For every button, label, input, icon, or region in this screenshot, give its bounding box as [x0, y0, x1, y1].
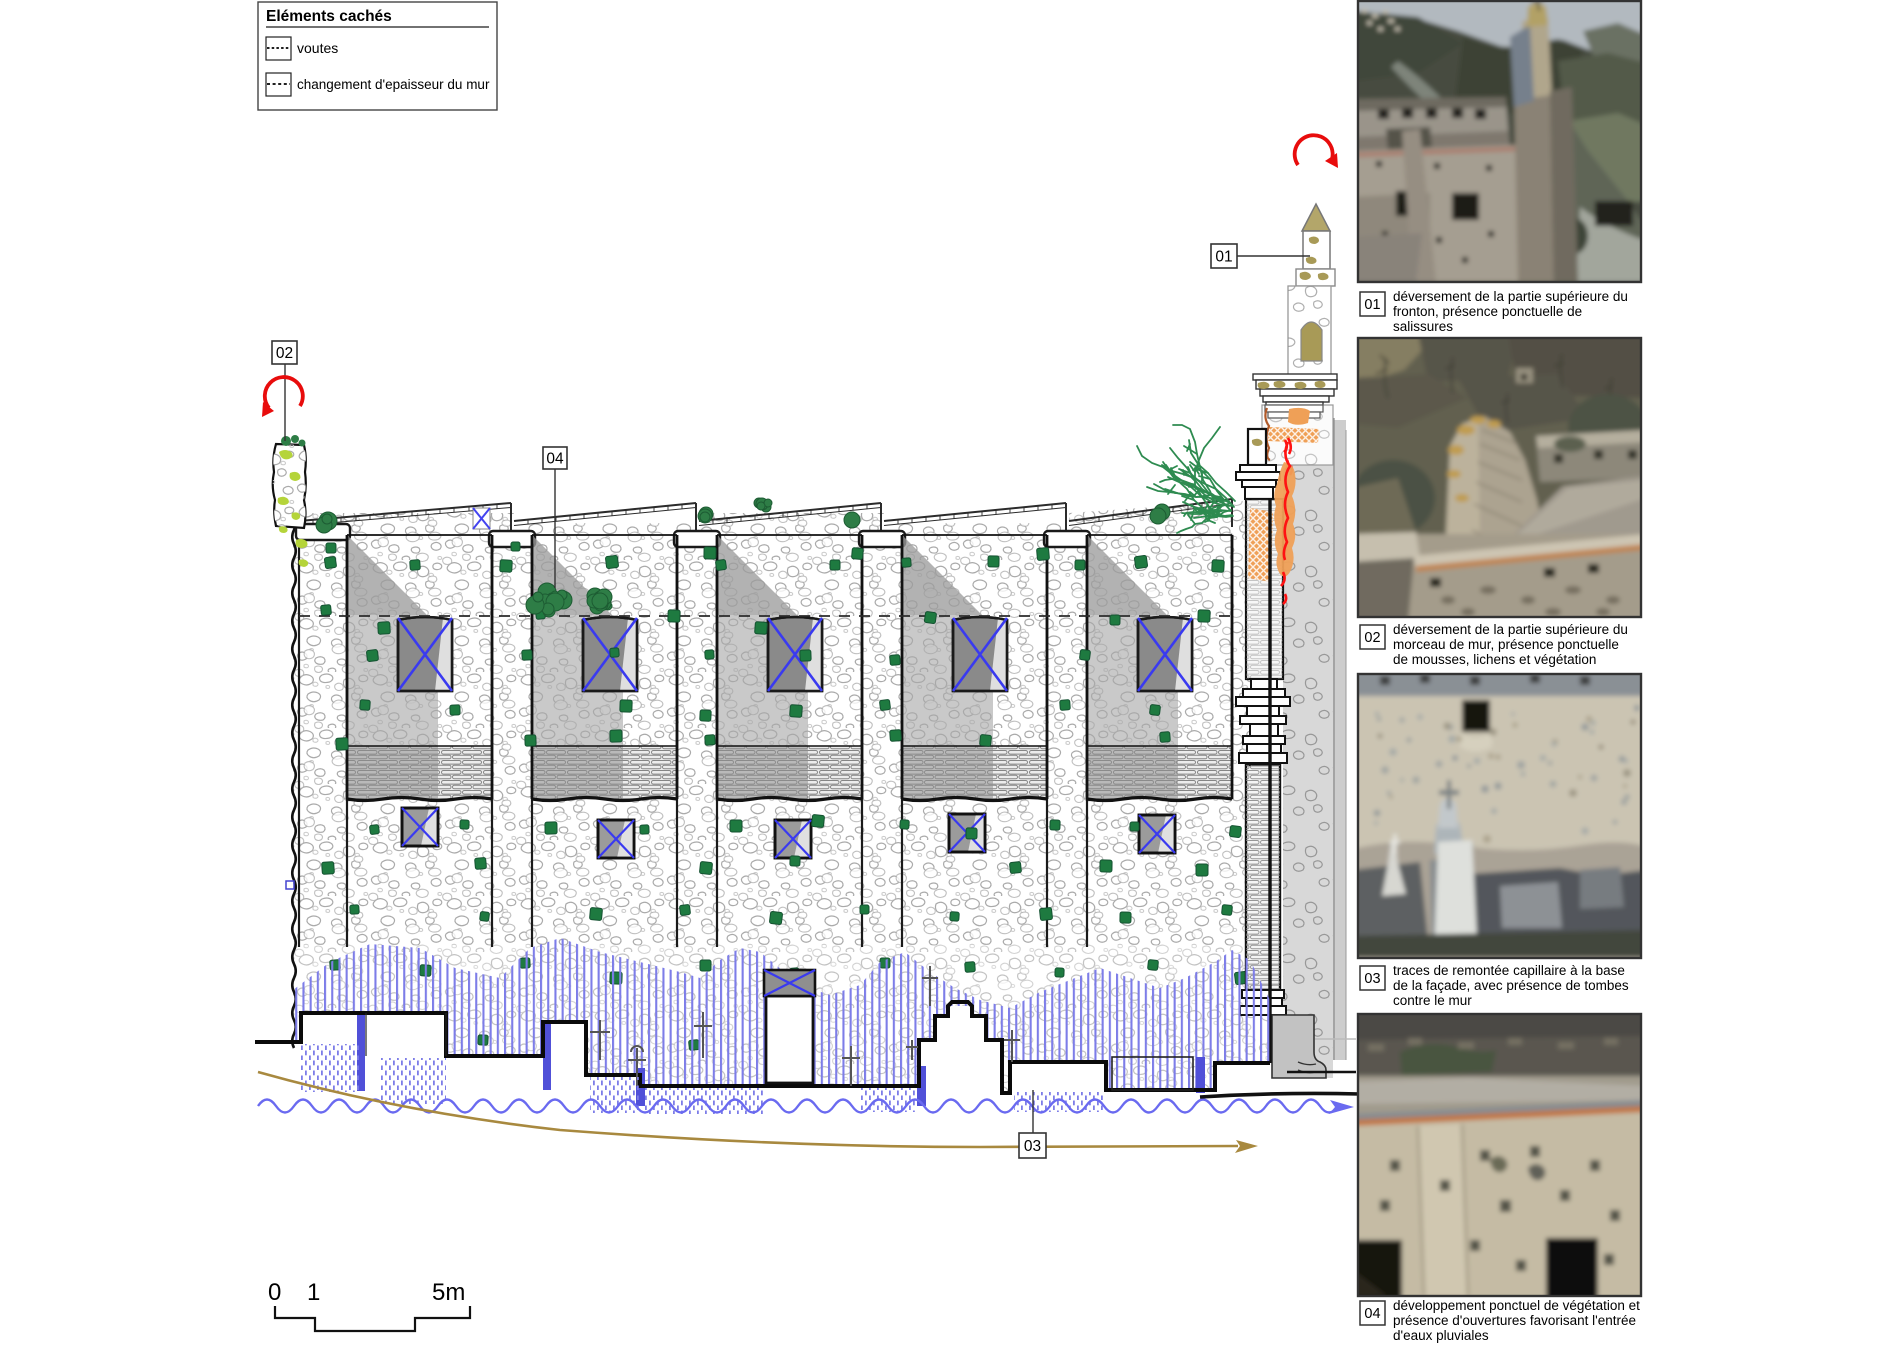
svg-text:03: 03 [1364, 971, 1380, 987]
svg-text:01: 01 [1364, 297, 1380, 313]
svg-text:Eléments cachés: Eléments cachés [266, 8, 392, 25]
svg-text:de mousses, lichens et végétat: de mousses, lichens et végétation [1393, 652, 1596, 667]
svg-text:déversement de la partie supér: déversement de la partie supérieure du [1393, 622, 1628, 637]
svg-text:développement ponctuel de végé: développement ponctuel de végétation et [1393, 1298, 1640, 1313]
svg-text:d'eaux pluviales: d'eaux pluviales [1393, 1328, 1489, 1343]
svg-text:salissures: salissures [1393, 319, 1453, 334]
svg-text:présence d'ouvertures favorisa: présence d'ouvertures favorisant l'entré… [1393, 1313, 1636, 1328]
svg-text:voutes: voutes [297, 40, 338, 56]
svg-text:traces de remontée capillaire: traces de remontée capillaire à la base [1393, 963, 1625, 978]
svg-text:changement d'epaisseur du mur: changement d'epaisseur du mur [297, 77, 490, 92]
svg-text:fronton, présence ponctuelle d: fronton, présence ponctuelle de [1393, 304, 1582, 319]
svg-text:03: 03 [1024, 1138, 1041, 1155]
svg-text:04: 04 [1364, 1306, 1380, 1322]
svg-text:5m: 5m [432, 1279, 465, 1306]
svg-text:de la façade, avec présence de: de la façade, avec présence de tombes [1393, 978, 1629, 993]
svg-text:01: 01 [1215, 249, 1232, 266]
svg-text:contre le mur: contre le mur [1393, 993, 1472, 1008]
svg-text:02: 02 [276, 345, 293, 362]
svg-text:04: 04 [546, 451, 564, 468]
svg-text:déversement de la partie supér: déversement de la partie supérieure du [1393, 289, 1628, 304]
svg-text:1: 1 [307, 1279, 320, 1306]
svg-text:morceau de mur, présence ponct: morceau de mur, présence ponctuelle [1393, 637, 1619, 652]
svg-text:0: 0 [268, 1279, 281, 1306]
svg-text:02: 02 [1364, 630, 1380, 646]
